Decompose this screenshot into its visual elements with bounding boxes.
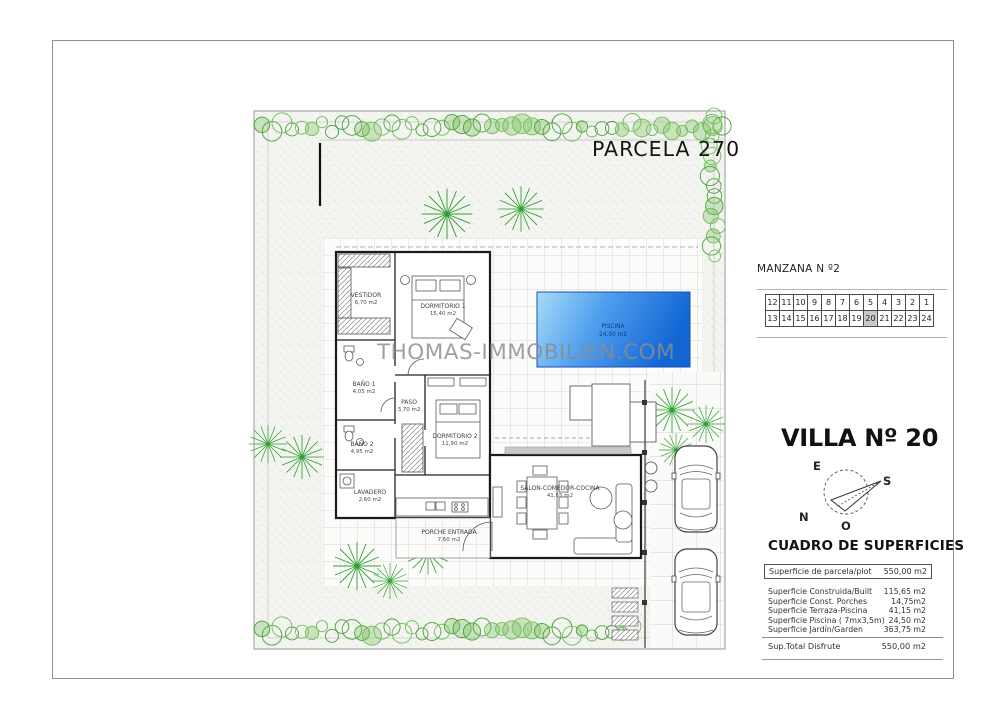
manzana-cell: 21 — [878, 311, 892, 327]
surfaces-title: CUADRO DE SUPERFICIES — [768, 538, 964, 554]
divider-line — [757, 289, 947, 290]
manzana-cell: 19 — [850, 311, 864, 327]
compass-north-label: N — [799, 510, 809, 524]
surfaces-row-label: Superficie Terraza-Piscina — [768, 606, 867, 616]
page-frame — [52, 40, 954, 679]
manzana-cell: 10 — [794, 295, 808, 311]
manzana-cell: 17 — [822, 311, 836, 327]
manzana-cell: 23 — [906, 311, 920, 327]
surfaces-row: Superficie Construida/Built 115,65 m2 — [768, 587, 926, 597]
compass-south-label: S — [883, 474, 891, 488]
surfaces-row-value: 363,75 m2 — [884, 625, 926, 635]
manzana-cell: 12 — [766, 295, 780, 311]
manzana-cell: 16 — [808, 311, 822, 327]
manzana-cell: 2 — [906, 295, 920, 311]
surfaces-parcel-row: Superficie de parcela/plot 550,00 m2 — [764, 564, 932, 579]
surfaces-row-value: 41,15 m2 — [889, 606, 926, 616]
compass-east-label: E — [813, 459, 821, 473]
manzana-cell: 18 — [836, 311, 850, 327]
surfaces-parcel-value: 550,00 m2 — [884, 567, 927, 576]
manzana-cell: 22 — [892, 311, 906, 327]
manzana-cell: 13 — [766, 311, 780, 327]
manzana-title: MANZANA N º2 — [757, 263, 840, 275]
manzana-cell: 20 — [864, 311, 878, 327]
divider-line — [762, 659, 943, 660]
surfaces-row: Superficie Piscina ( 7mx3,5m) 24,50 m2 — [768, 616, 926, 626]
surfaces-total-value: 550,00 m2 — [882, 641, 926, 651]
manzana-cell: 11 — [780, 295, 794, 311]
surfaces-row: Superficie Jardín/Garden 363,75 m2 — [768, 625, 926, 635]
manzana-cell: 7 — [836, 295, 850, 311]
villa-title: VILLA Nº 20 — [781, 424, 938, 452]
divider-line — [762, 637, 943, 638]
compass-west-label: O — [841, 519, 851, 533]
manzana-cell: 9 — [808, 295, 822, 311]
manzana-cell: 24 — [920, 311, 934, 327]
surfaces-row-value: 115,65 m2 — [884, 587, 926, 597]
surfaces-row-label: Superficie Const. Porches — [768, 597, 867, 607]
surfaces-rows: Superficie Construida/Built 115,65 m2 Su… — [768, 587, 926, 635]
surfaces-total-label: Sup.Total Disfrute — [768, 641, 840, 651]
surfaces-row: Superficie Const. Porches 14,75m2 — [768, 597, 926, 607]
surfaces-row-value: 14,75m2 — [891, 597, 926, 607]
manzana-cell: 8 — [822, 295, 836, 311]
manzana-row-2: 13 14 15 16 17 18 19 20 21 22 23 24 — [766, 311, 934, 327]
manzana-cell: 1 — [920, 295, 934, 311]
manzana-row-1: 12 11 10 9 8 7 6 5 4 3 2 1 — [766, 295, 934, 311]
surfaces-row: Superficie Terraza-Piscina 41,15 m2 — [768, 606, 926, 616]
manzana-cell: 14 — [780, 311, 794, 327]
manzana-cell: 6 — [850, 295, 864, 311]
manzana-cell: 15 — [794, 311, 808, 327]
surfaces-row-label: Superficie Construida/Built — [768, 587, 872, 597]
manzana-lot-table: 12 11 10 9 8 7 6 5 4 3 2 1 13 14 15 16 1… — [765, 294, 934, 327]
compass-rose: E S N O — [797, 455, 907, 533]
surfaces-row-label: Superficie Jardín/Garden — [768, 625, 863, 635]
manzana-cell: 4 — [878, 295, 892, 311]
surfaces-row-label: Superficie Piscina ( 7mx3,5m) — [768, 616, 885, 626]
manzana-cell: 3 — [892, 295, 906, 311]
surfaces-total-row: Sup.Total Disfrute 550,00 m2 — [768, 641, 926, 651]
surfaces-row-value: 24,50 m2 — [889, 616, 926, 626]
divider-line — [757, 337, 947, 338]
manzana-cell: 5 — [864, 295, 878, 311]
surfaces-parcel-label: Superficie de parcela/plot — [769, 567, 872, 576]
